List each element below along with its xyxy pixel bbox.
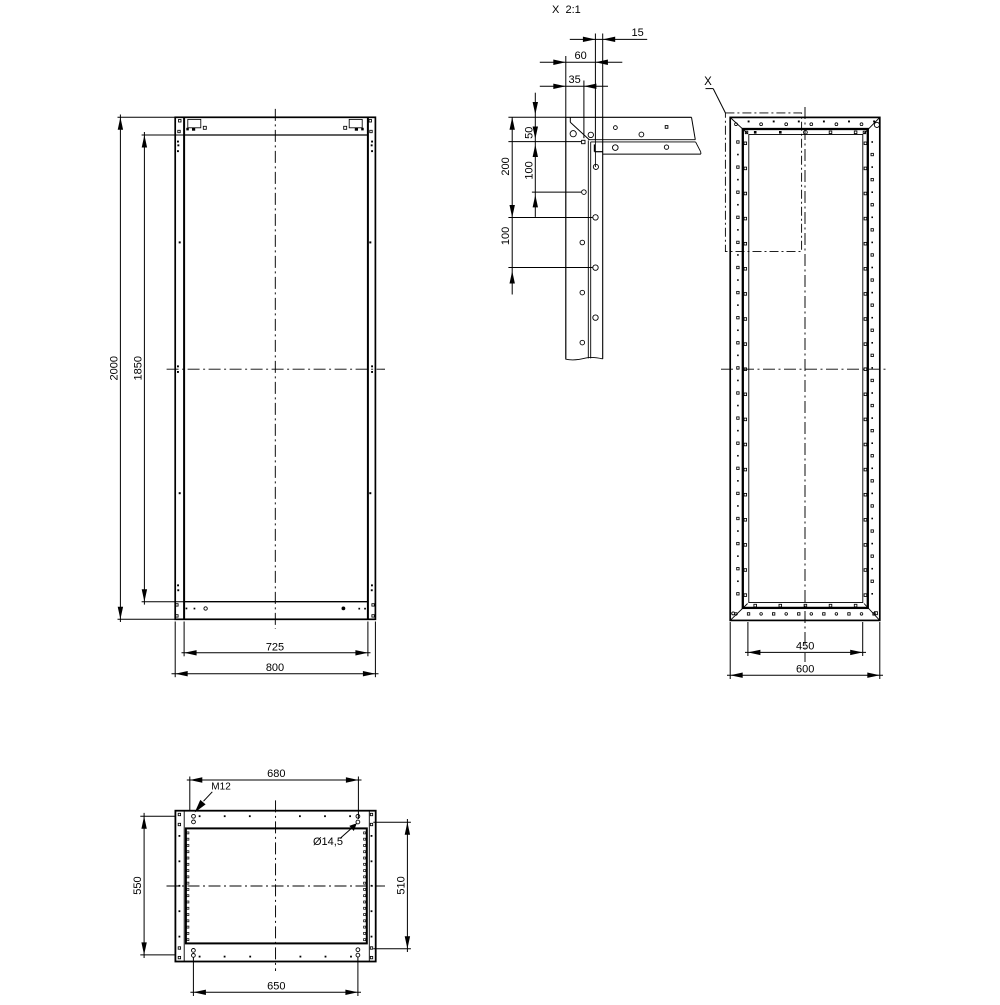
svg-text:15: 15 [631, 27, 643, 39]
svg-text:680: 680 [267, 768, 285, 780]
svg-text:Ø14,5: Ø14,5 [313, 836, 343, 848]
svg-text:600: 600 [796, 664, 814, 676]
svg-text:X: X [704, 76, 712, 88]
svg-text:35: 35 [568, 74, 580, 86]
svg-text:650: 650 [267, 981, 285, 993]
svg-text:450: 450 [796, 640, 814, 652]
svg-text:60: 60 [574, 50, 586, 62]
svg-text:550: 550 [132, 876, 144, 894]
svg-text:510: 510 [395, 876, 407, 894]
svg-text:1850: 1850 [132, 356, 144, 380]
svg-text:100: 100 [523, 161, 535, 179]
svg-text:200: 200 [500, 157, 512, 175]
svg-text:800: 800 [266, 662, 284, 674]
svg-text:2000: 2000 [108, 356, 120, 380]
svg-text:X 2:1: X 2:1 [552, 4, 581, 16]
svg-text:725: 725 [266, 641, 284, 653]
svg-text:M12: M12 [211, 782, 231, 793]
svg-text:100: 100 [500, 227, 512, 245]
